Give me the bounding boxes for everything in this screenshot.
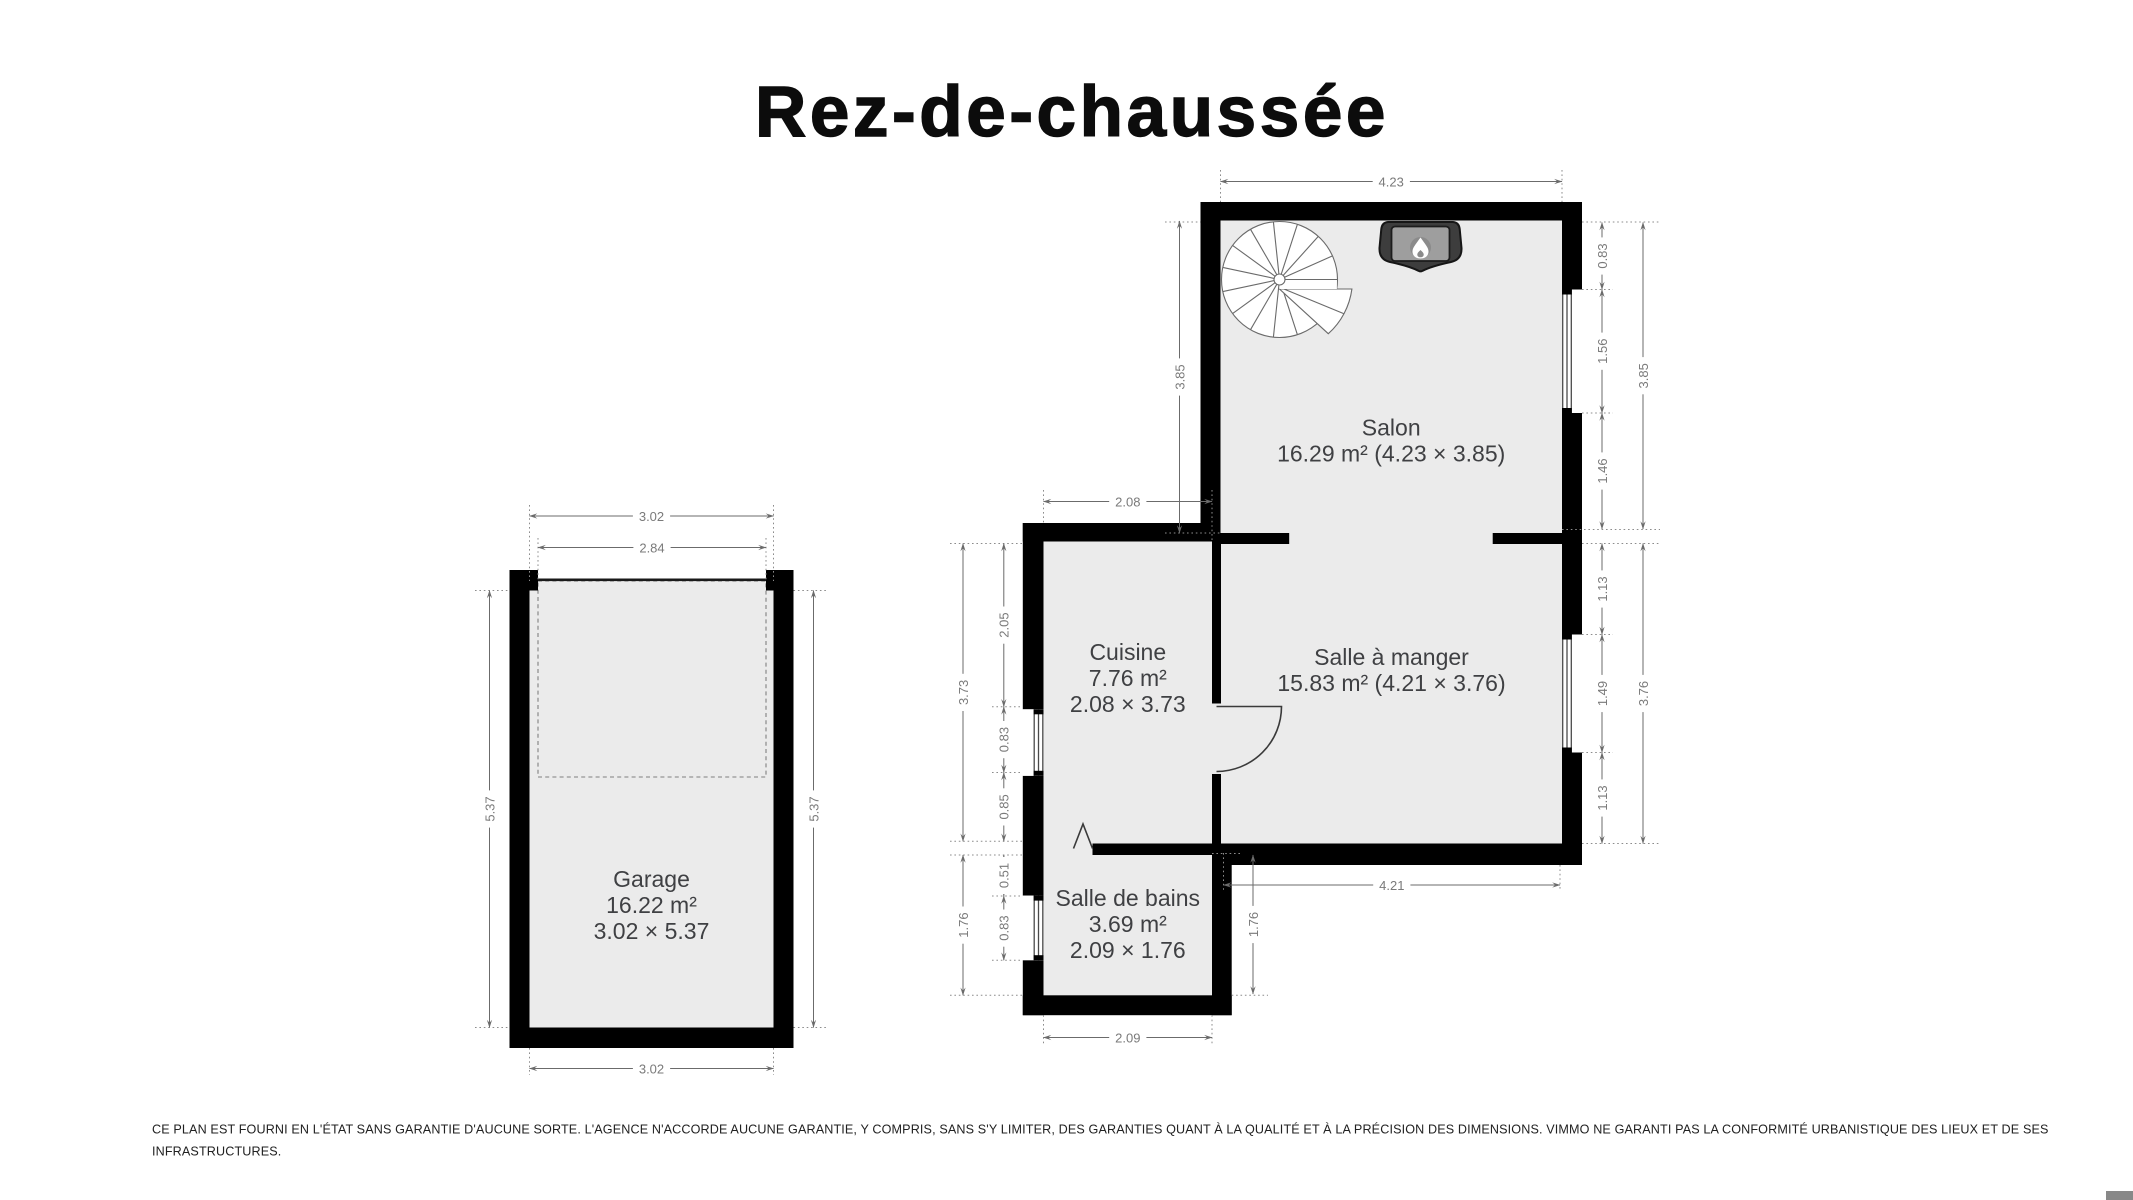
svg-text:4.21: 4.21 (1379, 878, 1404, 893)
svg-text:7.76 m²: 7.76 m² (1089, 665, 1167, 691)
svg-text:15.83 m² (4.21 × 3.76): 15.83 m² (4.21 × 3.76) (1277, 670, 1505, 696)
svg-text:16.29 m² (4.23 × 3.85): 16.29 m² (4.23 × 3.85) (1277, 441, 1505, 467)
svg-text:4.23: 4.23 (1379, 174, 1404, 189)
svg-text:Rez-de-chaussée: Rez-de-chaussée (755, 73, 1389, 152)
svg-text:2.09: 2.09 (1115, 1030, 1140, 1045)
svg-text:3.02: 3.02 (639, 1061, 664, 1076)
svg-text:3.73: 3.73 (956, 680, 971, 705)
svg-text:1.13: 1.13 (1595, 576, 1610, 601)
svg-text:0.83: 0.83 (1595, 243, 1610, 268)
svg-text:1.56: 1.56 (1595, 339, 1610, 364)
svg-text:1.49: 1.49 (1595, 681, 1610, 706)
svg-text:0.83: 0.83 (997, 727, 1012, 752)
svg-text:3.02: 3.02 (639, 509, 664, 524)
svg-text:1.46: 1.46 (1595, 458, 1610, 483)
svg-text:2.84: 2.84 (639, 540, 664, 555)
svg-text:3.69 m²: 3.69 m² (1089, 911, 1167, 937)
svg-text:0.83: 0.83 (997, 915, 1012, 940)
svg-text:0.51: 0.51 (997, 863, 1012, 888)
svg-text:1.76: 1.76 (1246, 912, 1261, 937)
svg-text:Salon: Salon (1362, 415, 1421, 441)
svg-text:5.37: 5.37 (806, 796, 821, 821)
svg-text:3.76: 3.76 (1636, 681, 1651, 706)
svg-text:5.37: 5.37 (482, 796, 497, 821)
svg-text:INFRASTRUCTURES.: INFRASTRUCTURES. (152, 1145, 281, 1159)
svg-text:2.08 × 3.73: 2.08 × 3.73 (1070, 691, 1186, 717)
svg-text:CE PLAN EST FOURNI EN L'ÉTAT S: CE PLAN EST FOURNI EN L'ÉTAT SANS GARANT… (152, 1122, 2049, 1137)
svg-text:Garage: Garage (613, 866, 690, 892)
svg-text:Salle à manger: Salle à manger (1314, 644, 1469, 670)
svg-text:2.05: 2.05 (997, 612, 1012, 637)
svg-text:Salle de bains: Salle de bains (1056, 885, 1201, 911)
svg-text:Cuisine: Cuisine (1089, 639, 1166, 665)
svg-text:1.76: 1.76 (956, 912, 971, 937)
svg-text:16.22 m²: 16.22 m² (606, 892, 697, 918)
svg-text:3.02 × 5.37: 3.02 × 5.37 (594, 918, 710, 944)
svg-text:3.85: 3.85 (1172, 364, 1187, 389)
svg-text:2.09 × 1.76: 2.09 × 1.76 (1070, 937, 1186, 963)
svg-text:1.13: 1.13 (1595, 785, 1610, 810)
svg-text:3.85: 3.85 (1636, 363, 1651, 388)
svg-text:2.08: 2.08 (1115, 494, 1140, 509)
svg-text:0.85: 0.85 (997, 794, 1012, 819)
